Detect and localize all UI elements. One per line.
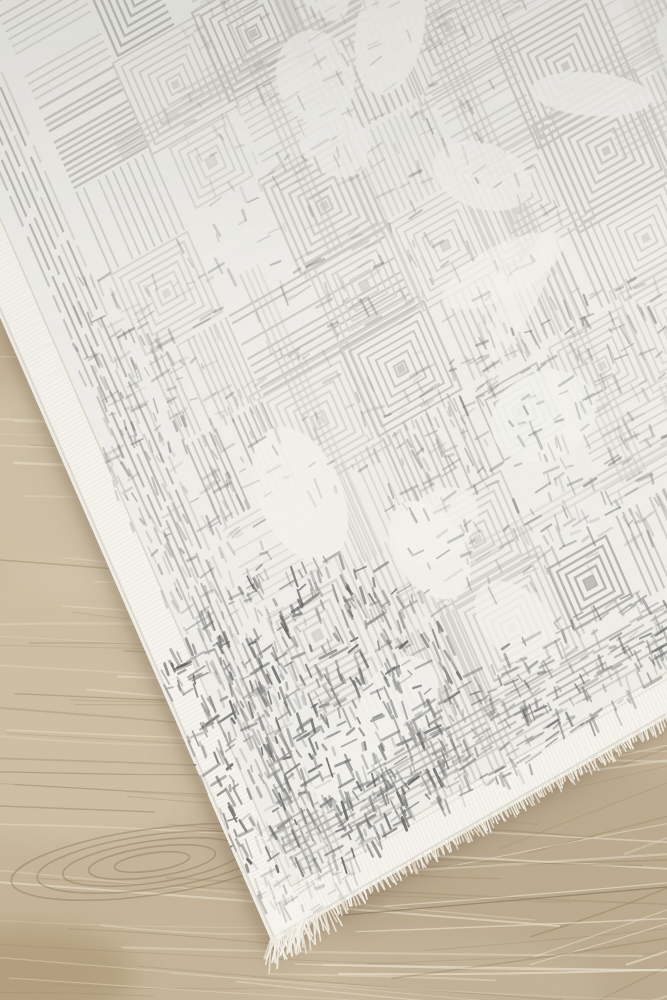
rug-product-photo: Corner of a cream and grey distressed ge… xyxy=(0,0,667,1000)
film-grain xyxy=(0,0,667,1000)
photo-effects xyxy=(0,0,667,1000)
photo-canvas: Corner of a cream and grey distressed ge… xyxy=(0,0,667,1000)
